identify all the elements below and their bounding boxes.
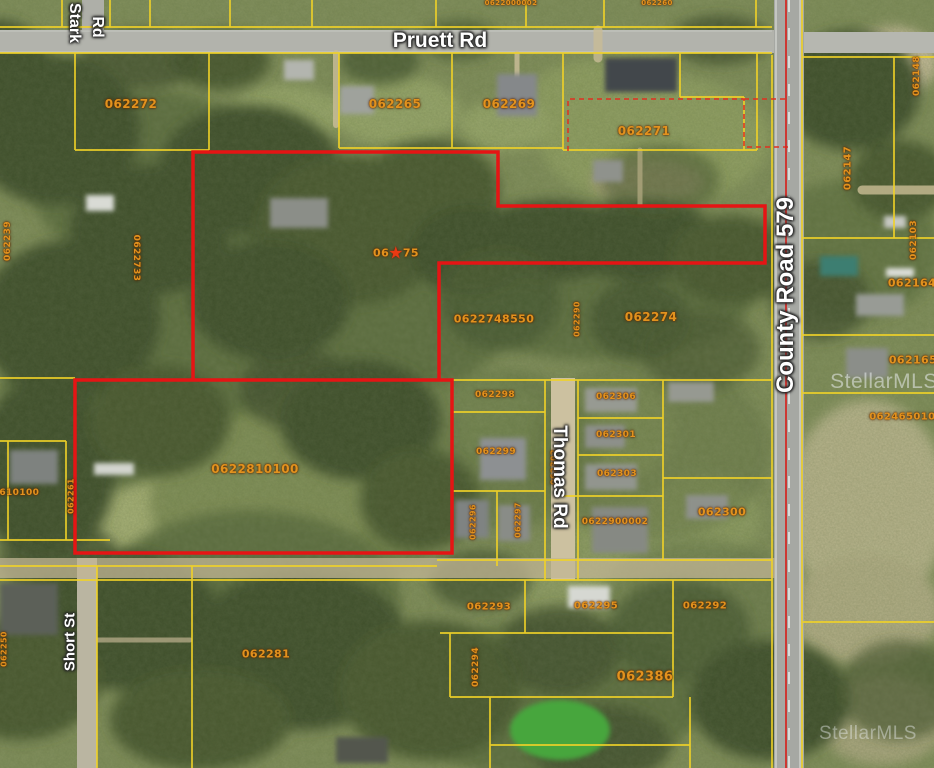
parcel-label-062297: 062297 <box>514 502 523 538</box>
parcel-label-062271: 062271 <box>618 124 671 138</box>
parcel-label-0622000002: 0622000002 <box>485 0 538 7</box>
parcel-label-062281: 062281 <box>242 648 290 661</box>
map-label-layer: 062272062239062273306226506226906227106★… <box>0 0 934 768</box>
parcel-label-062306: 062306 <box>596 392 636 402</box>
parcel-label-062239: 062239 <box>3 221 13 261</box>
parcel-label-062260: 062260 <box>641 0 673 7</box>
watermark: StellarMLS <box>819 723 917 745</box>
parcel-label-062275: 06★75 <box>373 247 419 260</box>
road-label-short-st: Short St <box>62 613 79 671</box>
parcel-label-062274: 062274 <box>625 310 678 324</box>
parcel-label-062303: 062303 <box>597 469 637 479</box>
parcel-label-062265: 062265 <box>369 97 422 111</box>
parcel-label-0622810100: 0622810100 <box>211 462 299 476</box>
parcel-label-062272: 062272 <box>105 97 158 111</box>
parcel-label-062269: 062269 <box>483 97 536 111</box>
parcel-label-062261: 062261 <box>67 478 76 514</box>
road-label-thomas-rd: Thomas Rd <box>548 425 570 528</box>
road-label-pruett-rd: Pruett Rd <box>393 29 488 53</box>
parcel-label-062294: 062294 <box>471 647 481 687</box>
parcel-label-062301: 062301 <box>596 430 636 440</box>
parcel-label-062296: 062296 <box>469 504 478 540</box>
parcel-label-062164: 062164 <box>888 277 934 290</box>
road-label-stark-rd-line2: Rd <box>88 16 106 37</box>
parcel-label-0622610100: 0622610100 <box>0 488 39 498</box>
parcel-label-062290: 062290 <box>573 301 582 337</box>
parcel-label-062299: 062299 <box>476 447 516 457</box>
watermark: StellarMLS <box>830 370 934 394</box>
parcel-label-062300: 062300 <box>698 506 746 519</box>
parcel-label-0622900002: 0622900002 <box>582 517 649 527</box>
parcel-label-062103: 062103 <box>909 220 919 260</box>
parcel-label-062148: 062148 <box>912 56 922 96</box>
parcel-label-062295: 062295 <box>574 601 618 612</box>
parcel-label-062298: 062298 <box>475 390 515 400</box>
parcel-label-062147: 062147 <box>843 146 854 190</box>
parcel-label-0622733: 0622733 <box>131 235 141 282</box>
parcel-label-062250: 062250 <box>0 631 9 667</box>
aerial-parcel-map: 062272062239062273306226506226906227106★… <box>0 0 934 768</box>
parcel-label-062386: 062386 <box>617 670 674 685</box>
parcel-label-0622748550: 0622748550 <box>454 313 535 326</box>
parcel-label-062293: 062293 <box>467 602 511 613</box>
road-label-county-road-579: County Road 579 <box>772 197 800 393</box>
parcel-label-062292: 062292 <box>683 601 727 612</box>
road-label-stark-rd-line1: Stark <box>65 3 83 43</box>
parcel-label-062165: 062165 <box>889 354 934 367</box>
subject-star-icon: ★ <box>388 244 404 264</box>
parcel-label-0624650100: 0624650100 <box>869 412 934 423</box>
